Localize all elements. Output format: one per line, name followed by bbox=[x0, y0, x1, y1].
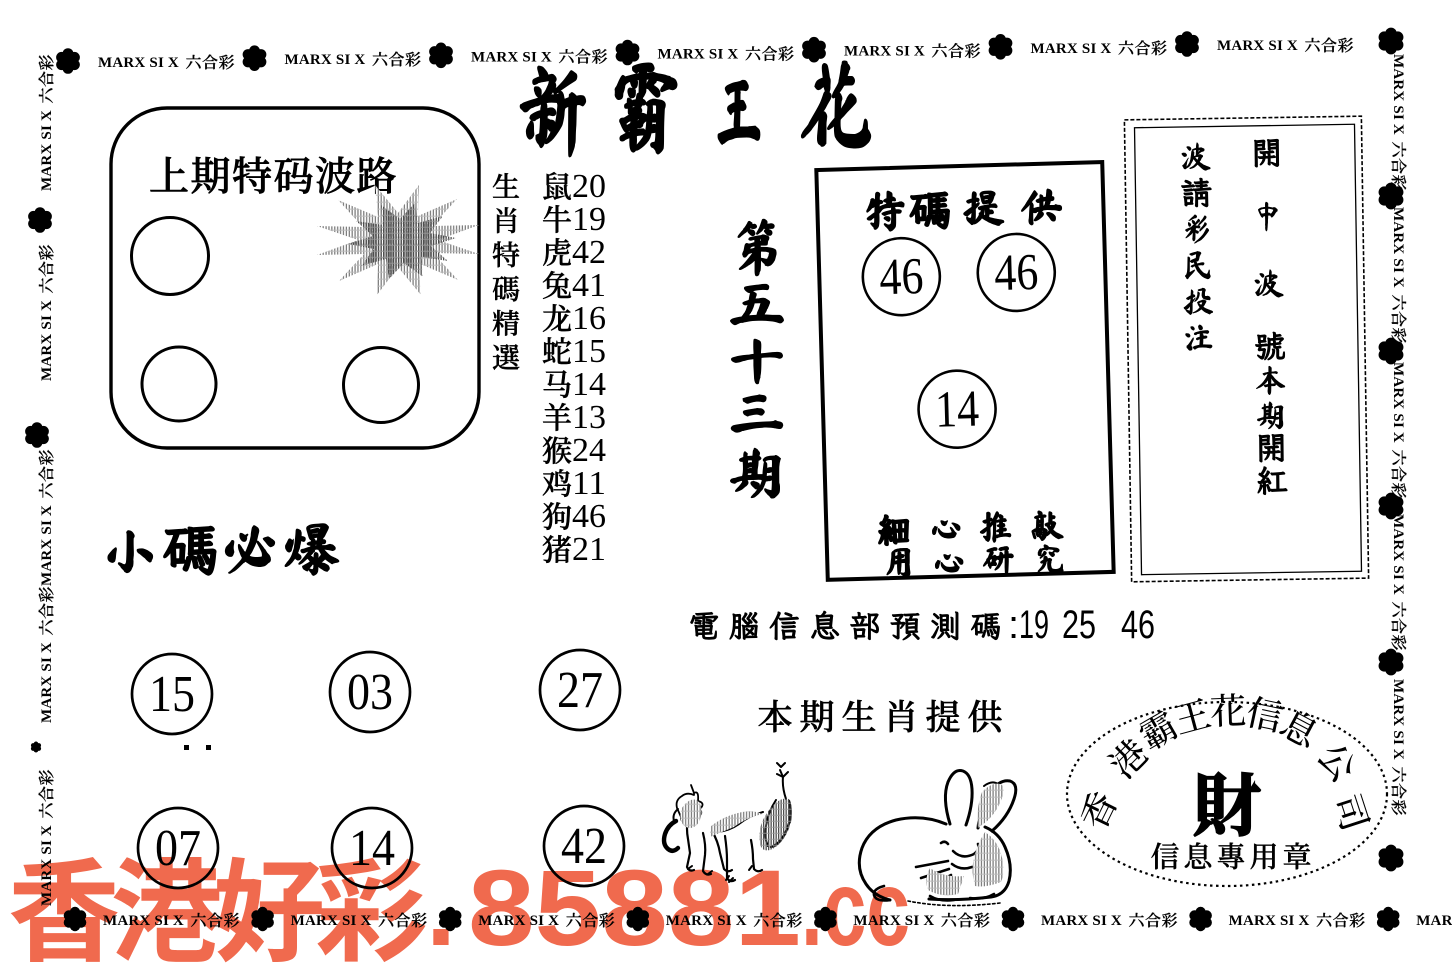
svg-text::: : bbox=[1008, 603, 1019, 647]
svg-text:46: 46 bbox=[572, 498, 606, 535]
svg-text:MARX SI X: MARX SI X bbox=[1390, 362, 1406, 443]
svg-text:MARX SI X: MARX SI X bbox=[1390, 679, 1406, 760]
svg-text:MARX SI X: MARX SI X bbox=[39, 300, 55, 381]
svg-text:MARX SI X: MARX SI X bbox=[39, 642, 55, 723]
svg-text:MARX SI X: MARX SI X bbox=[471, 49, 552, 65]
svg-text:MARX SI X: MARX SI X bbox=[39, 505, 55, 586]
svg-text:13: 13 bbox=[572, 399, 606, 436]
svg-text:15: 15 bbox=[149, 666, 195, 723]
svg-text:03: 03 bbox=[347, 664, 393, 721]
svg-text:14: 14 bbox=[572, 366, 606, 403]
svg-text:MARX SI X: MARX SI X bbox=[1390, 514, 1406, 595]
svg-text:42: 42 bbox=[572, 234, 606, 271]
svg-text:19: 19 bbox=[1019, 603, 1049, 647]
svg-text:19: 19 bbox=[572, 201, 606, 238]
svg-text:46: 46 bbox=[993, 244, 1039, 302]
svg-text:85881: 85881 bbox=[468, 847, 801, 968]
svg-text:21: 21 bbox=[572, 531, 606, 568]
svg-text:MARX SI X: MARX SI X bbox=[1041, 913, 1122, 929]
svg-text:MARX SI X: MARX SI X bbox=[1031, 41, 1112, 57]
svg-text:11: 11 bbox=[572, 465, 606, 502]
svg-text:16: 16 bbox=[572, 300, 606, 337]
svg-text:27: 27 bbox=[557, 662, 603, 719]
svg-text:20: 20 bbox=[572, 168, 606, 205]
svg-text:MARX SI X: MARX SI X bbox=[1217, 38, 1298, 54]
svg-text:.cc: .cc bbox=[801, 847, 910, 968]
svg-text:46: 46 bbox=[1121, 603, 1155, 647]
svg-text:MARX SI X: MARX SI X bbox=[1390, 54, 1406, 135]
svg-text:MARX SI X: MARX SI X bbox=[1229, 913, 1310, 929]
svg-text:24: 24 bbox=[572, 432, 606, 469]
svg-text:15: 15 bbox=[572, 333, 606, 370]
svg-text:MARX SI X: MARX SI X bbox=[1416, 913, 1452, 929]
svg-text:MARX SI X: MARX SI X bbox=[98, 55, 179, 71]
svg-text:MARX SI X: MARX SI X bbox=[285, 52, 366, 68]
svg-text:25: 25 bbox=[1062, 603, 1096, 647]
svg-text:MARX SI X: MARX SI X bbox=[1390, 207, 1406, 288]
svg-text:.: . bbox=[426, 847, 456, 968]
svg-text:14: 14 bbox=[934, 381, 980, 439]
svg-text:41: 41 bbox=[572, 267, 606, 304]
svg-text:MARX SI X: MARX SI X bbox=[658, 47, 739, 63]
svg-text:MARX SI X: MARX SI X bbox=[39, 110, 55, 191]
svg-text:46: 46 bbox=[879, 248, 925, 306]
svg-text:MARX SI X: MARX SI X bbox=[844, 44, 925, 60]
